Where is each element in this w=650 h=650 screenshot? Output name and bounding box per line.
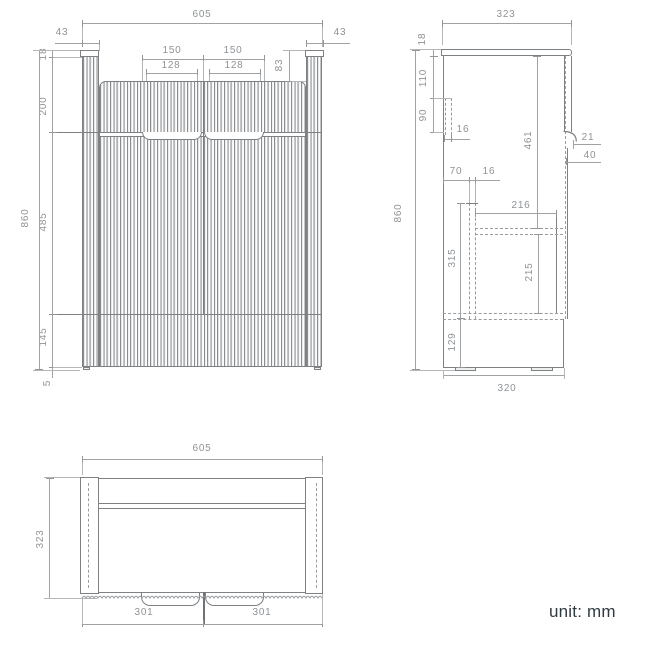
unit-note: unit: mm [549, 602, 616, 622]
side-handle-hook [564, 132, 577, 142]
curves-overlay [0, 0, 650, 650]
technical-drawing-canvas: 605 43 43 150 150 128 128 [0, 0, 650, 650]
plan-fluted-edge [82, 596, 322, 598]
